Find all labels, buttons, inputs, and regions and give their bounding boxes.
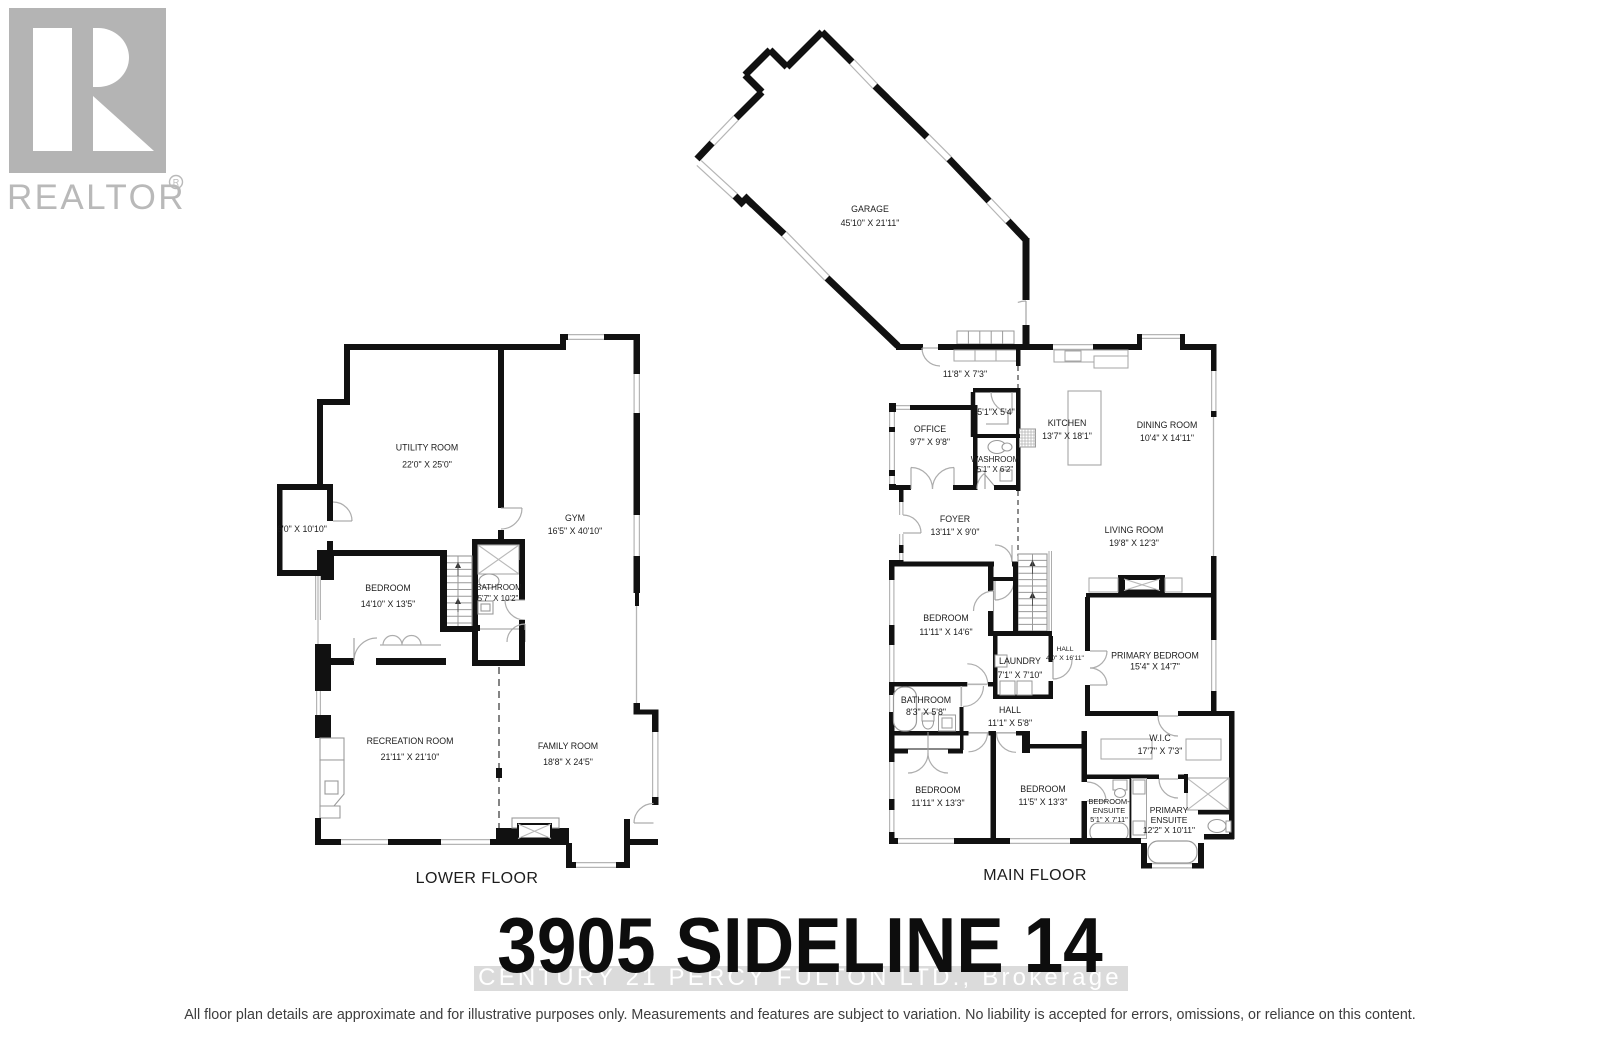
- svg-text:12'2" X 10'11": 12'2" X 10'11": [1143, 825, 1195, 835]
- svg-text:14'10" X 13'5": 14'10" X 13'5": [361, 599, 416, 609]
- svg-text:BEDROOM: BEDROOM: [923, 613, 968, 623]
- svg-text:RECREATION ROOM: RECREATION ROOM: [367, 736, 454, 746]
- svg-text:15'4" X 14'7": 15'4" X 14'7": [1130, 662, 1180, 672]
- svg-text:19'8" X 12'3": 19'8" X 12'3": [1109, 538, 1159, 548]
- svg-text:OFFICE: OFFICE: [914, 424, 946, 434]
- svg-text:GYM: GYM: [565, 513, 585, 523]
- svg-text:HALL: HALL: [1056, 646, 1073, 653]
- svg-text:W.I.C: W.I.C: [1149, 733, 1171, 743]
- svg-text:DINING ROOM: DINING ROOM: [1137, 420, 1198, 430]
- svg-text:5'1"X 5'4": 5'1"X 5'4": [977, 407, 1015, 417]
- svg-text:11'5" X 13'3": 11'5" X 13'3": [1018, 797, 1067, 807]
- svg-text:17'7" X 7'3": 17'7" X 7'3": [1138, 746, 1183, 756]
- svg-text:8'3" X 5'8": 8'3" X 5'8": [906, 707, 946, 717]
- svg-text:ENSUITE: ENSUITE: [1151, 815, 1188, 825]
- svg-text:All floor plan details are app: All floor plan details are approximate a…: [184, 1007, 1415, 1023]
- svg-text:BEDROOM-: BEDROOM-: [1088, 797, 1130, 806]
- svg-text:11'11" X 13'3": 11'11" X 13'3": [911, 798, 964, 808]
- svg-text:BEDROOM: BEDROOM: [915, 785, 960, 795]
- svg-text:HALL: HALL: [999, 705, 1021, 715]
- svg-text:FAMILY ROOM: FAMILY ROOM: [538, 741, 598, 751]
- svg-text:11'11" X 14'6": 11'11" X 14'6": [919, 627, 972, 637]
- svg-text:ENSUITE: ENSUITE: [1093, 806, 1126, 815]
- svg-text:LAUNDRY: LAUNDRY: [999, 656, 1041, 666]
- svg-text:13'7" X 18'1": 13'7" X 18'1": [1042, 431, 1092, 441]
- svg-text:11'1" X 5'8": 11'1" X 5'8": [988, 718, 1032, 728]
- svg-text:4'0" X 16'11": 4'0" X 16'11": [1046, 655, 1084, 662]
- svg-text:10'4" X 14'11": 10'4" X 14'11": [1140, 433, 1194, 443]
- svg-text:6'0" X 10'10": 6'0" X 10'10": [277, 524, 327, 534]
- svg-text:REALTOR: REALTOR: [7, 178, 186, 217]
- svg-text:9'7" X 9'8": 9'7" X 9'8": [910, 437, 950, 447]
- svg-text:5'7" X 10'2": 5'7" X 10'2": [478, 594, 519, 603]
- svg-text:16'5" X 40'10": 16'5" X 40'10": [548, 526, 603, 536]
- svg-text:BATHROOM: BATHROOM: [476, 583, 522, 592]
- svg-text:7'1" X 7'10": 7'1" X 7'10": [998, 670, 1043, 680]
- svg-text:3905 SIDELINE 14: 3905 SIDELINE 14: [497, 901, 1103, 989]
- svg-text:R: R: [173, 178, 180, 188]
- svg-text:BEDROOM: BEDROOM: [365, 583, 410, 593]
- svg-text:PRIMARY BEDROOM: PRIMARY BEDROOM: [1111, 651, 1199, 661]
- svg-text:FOYER: FOYER: [940, 514, 970, 524]
- svg-text:5'1" X 6'2": 5'1" X 6'2": [977, 465, 1013, 474]
- svg-text:LOWER FLOOR: LOWER FLOOR: [416, 870, 539, 887]
- svg-text:BATHROOM: BATHROOM: [901, 695, 951, 705]
- svg-text:UTILITY ROOM: UTILITY ROOM: [396, 443, 458, 453]
- svg-text:45'10" X 21'11": 45'10" X 21'11": [841, 218, 900, 228]
- svg-text:KITCHEN: KITCHEN: [1048, 418, 1087, 428]
- svg-text:GARAGE: GARAGE: [851, 204, 889, 214]
- svg-text:21'11" X 21'10": 21'11" X 21'10": [381, 752, 440, 762]
- svg-text:11'8" X 7'3": 11'8" X 7'3": [943, 369, 987, 379]
- svg-text:5'1" X 7'11": 5'1" X 7'11": [1090, 815, 1128, 824]
- svg-text:13'11" X 9'0": 13'11" X 9'0": [930, 527, 979, 537]
- svg-text:22'0" X 25'0": 22'0" X 25'0": [402, 460, 452, 470]
- svg-text:LIVING ROOM: LIVING ROOM: [1105, 525, 1164, 535]
- svg-text:WASHROOM: WASHROOM: [971, 455, 1020, 464]
- svg-text:BEDROOM: BEDROOM: [1020, 784, 1065, 794]
- svg-text:18'8" X 24'5": 18'8" X 24'5": [543, 757, 593, 767]
- svg-text:PRIMARY: PRIMARY: [1150, 805, 1189, 815]
- svg-text:MAIN FLOOR: MAIN FLOOR: [983, 867, 1087, 884]
